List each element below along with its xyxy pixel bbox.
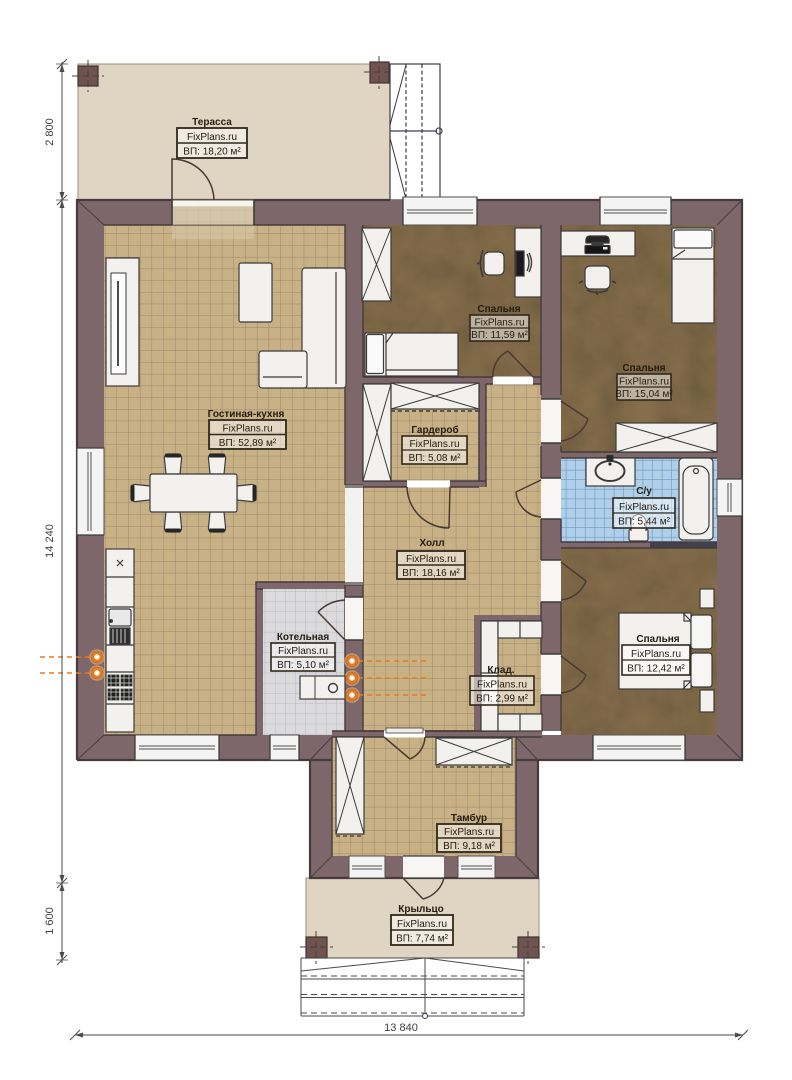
- svg-text:FixPlans.ru: FixPlans.ru: [406, 554, 456, 565]
- svg-text:Спальня: Спальня: [636, 634, 679, 645]
- svg-text:Холл: Холл: [419, 538, 444, 549]
- svg-text:ВП: 18,16 м²: ВП: 18,16 м²: [402, 568, 460, 579]
- svg-text:ВП: 5,44 м²: ВП: 5,44 м²: [618, 517, 671, 528]
- svg-text:14 240: 14 240: [44, 524, 56, 558]
- svg-text:Гардероб: Гардероб: [411, 424, 458, 436]
- svg-text:Гостиная-кухня: Гостиная-кухня: [208, 409, 285, 420]
- svg-text:FixPlans.ru: FixPlans.ru: [397, 919, 447, 930]
- svg-text:1 600: 1 600: [44, 907, 56, 935]
- svg-text:ВП: 9,18 м²: ВП: 9,18 м²: [443, 841, 496, 852]
- svg-text:Спальня: Спальня: [477, 304, 520, 315]
- svg-text:13 840: 13 840: [384, 1022, 418, 1034]
- svg-text:Спальня: Спальня: [622, 363, 665, 374]
- svg-text:ВП: 12,42 м²: ВП: 12,42 м²: [627, 664, 685, 675]
- svg-text:Котельная: Котельная: [277, 632, 330, 643]
- svg-text:FixPlans.ru: FixPlans.ru: [619, 377, 669, 388]
- svg-text:ВП: 15,04 м²: ВП: 15,04 м²: [615, 389, 673, 400]
- svg-text:ВП: 18,20 м²: ВП: 18,20 м²: [183, 147, 241, 158]
- svg-text:FixPlans.ru: FixPlans.ru: [278, 646, 328, 657]
- svg-text:Крыльцо: Крыльцо: [398, 904, 444, 915]
- svg-text:С/у: С/у: [636, 486, 652, 497]
- svg-text:FixPlans.ru: FixPlans.ru: [619, 502, 669, 513]
- svg-text:ВП: 52,89 м²: ВП: 52,89 м²: [219, 438, 277, 449]
- svg-text:ВП: 5,08 м²: ВП: 5,08 м²: [409, 453, 462, 464]
- svg-text:FixPlans.ru: FixPlans.ru: [222, 424, 272, 435]
- svg-text:FixPlans.ru: FixPlans.ru: [474, 318, 524, 329]
- svg-text:ВП: 7,74 м²: ВП: 7,74 м²: [396, 934, 449, 945]
- svg-text:Тамбур: Тамбур: [451, 812, 487, 824]
- svg-text:ВП: 5,10 м²: ВП: 5,10 м²: [277, 660, 330, 671]
- svg-text:FixPlans.ru: FixPlans.ru: [409, 439, 459, 450]
- svg-text:FixPlans.ru: FixPlans.ru: [631, 649, 681, 660]
- svg-text:Терасса: Терасса: [192, 117, 232, 128]
- svg-text:2 800: 2 800: [44, 118, 56, 146]
- svg-text:ВП: 11,59 м²: ВП: 11,59 м²: [471, 330, 528, 341]
- svg-text:FixPlans.ru: FixPlans.ru: [444, 827, 494, 838]
- svg-text:FixPlans.ru: FixPlans.ru: [477, 680, 527, 691]
- svg-text:FixPlans.ru: FixPlans.ru: [187, 132, 237, 143]
- svg-text:Клад.: Клад.: [487, 665, 514, 676]
- svg-text:ВП: 2,99 м²: ВП: 2,99 м²: [476, 694, 529, 705]
